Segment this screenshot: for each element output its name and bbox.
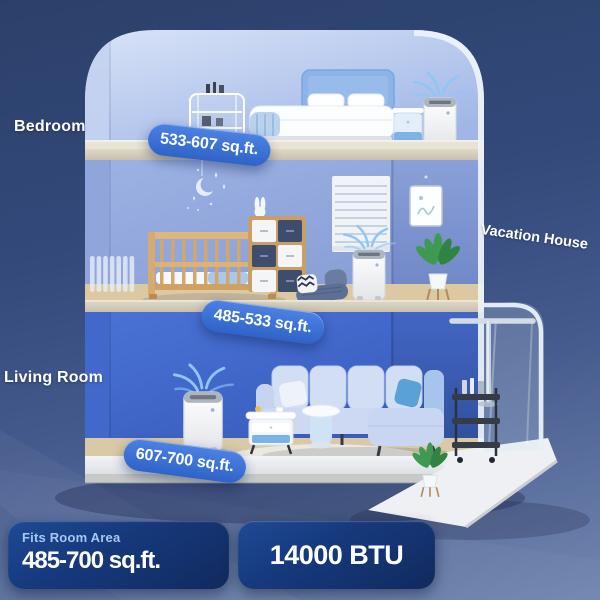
window-blinds-icon bbox=[332, 176, 390, 252]
radiator-icon bbox=[90, 256, 134, 292]
infographic-canvas: Bedroom Living Room Vacation House 533-6… bbox=[0, 0, 600, 600]
bedroom-scene bbox=[85, 30, 484, 154]
ac-unit-icon bbox=[353, 250, 385, 301]
fits-room-area-value: 485-700 sq.ft. bbox=[22, 547, 229, 575]
ac-unit-icon bbox=[184, 392, 222, 453]
house-cutaway-illustration bbox=[0, 0, 600, 600]
btu-card: 14000 BTU bbox=[238, 521, 435, 589]
balcony-glass-icon bbox=[484, 302, 544, 452]
fits-room-area-caption: Fits Room Area bbox=[22, 530, 229, 545]
fits-room-area-card: Fits Room Area 485-700 sq.ft. bbox=[8, 521, 229, 589]
living-room-label: Living Room bbox=[4, 369, 103, 387]
bedroom-label: Bedroom bbox=[14, 118, 86, 136]
kids-room-scene bbox=[85, 160, 484, 307]
btu-value: 14000 BTU bbox=[270, 540, 404, 571]
